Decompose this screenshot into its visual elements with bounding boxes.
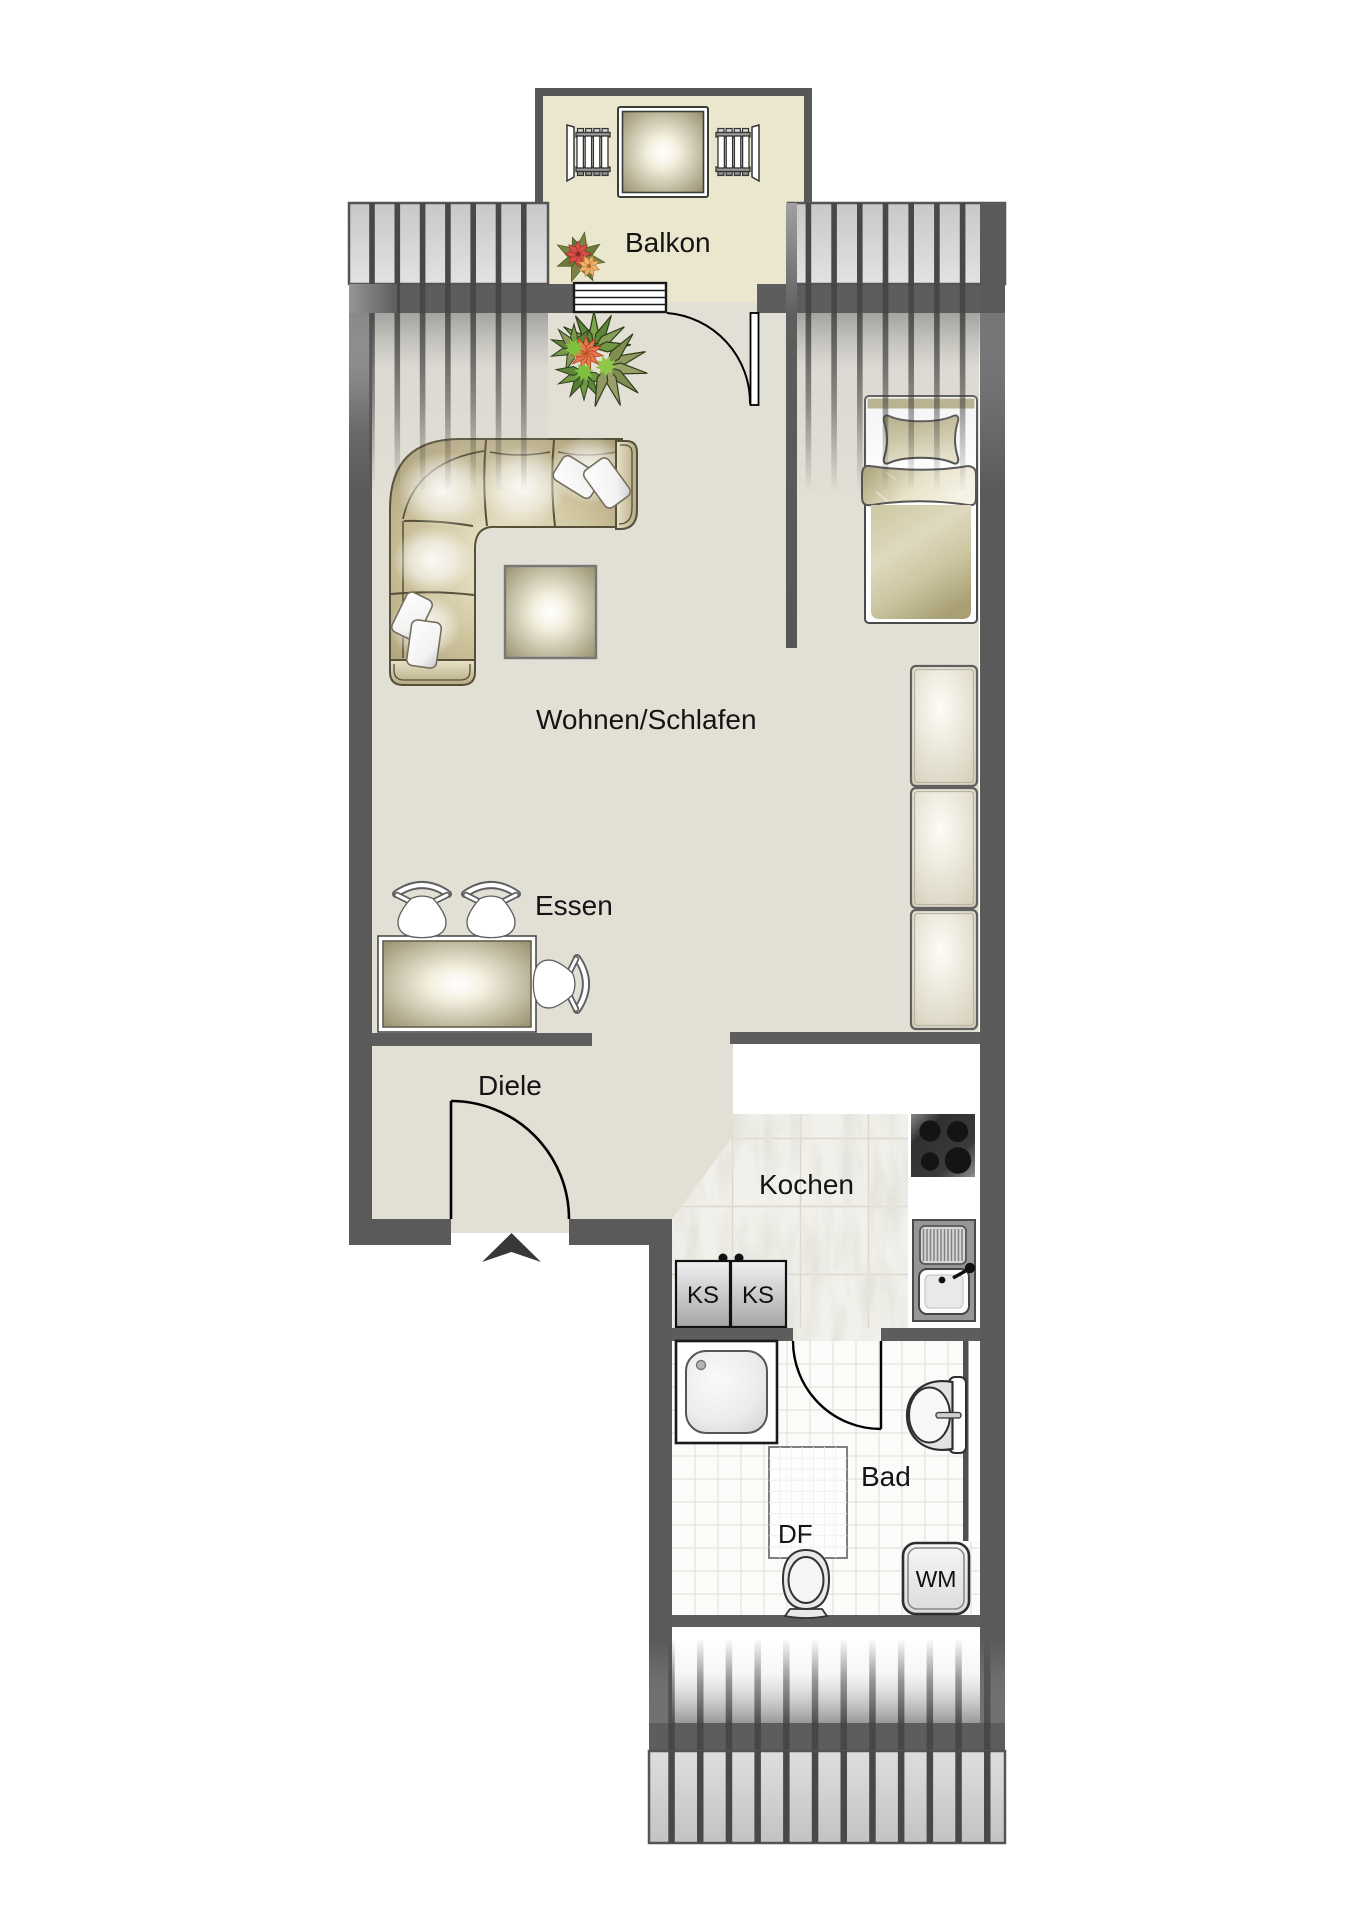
svg-text:KS: KS xyxy=(742,1282,774,1309)
svg-text:DF: DF xyxy=(778,1519,813,1549)
svg-text:Diele: Diele xyxy=(478,1070,542,1101)
svg-text:Wohnen/Schlafen: Wohnen/Schlafen xyxy=(536,704,757,735)
svg-text:Bad: Bad xyxy=(861,1461,911,1492)
svg-text:Balkon: Balkon xyxy=(625,227,711,258)
svg-text:Kochen: Kochen xyxy=(759,1169,854,1200)
svg-text:KS: KS xyxy=(687,1282,719,1309)
svg-text:Essen: Essen xyxy=(535,890,613,921)
svg-text:WM: WM xyxy=(916,1566,957,1592)
